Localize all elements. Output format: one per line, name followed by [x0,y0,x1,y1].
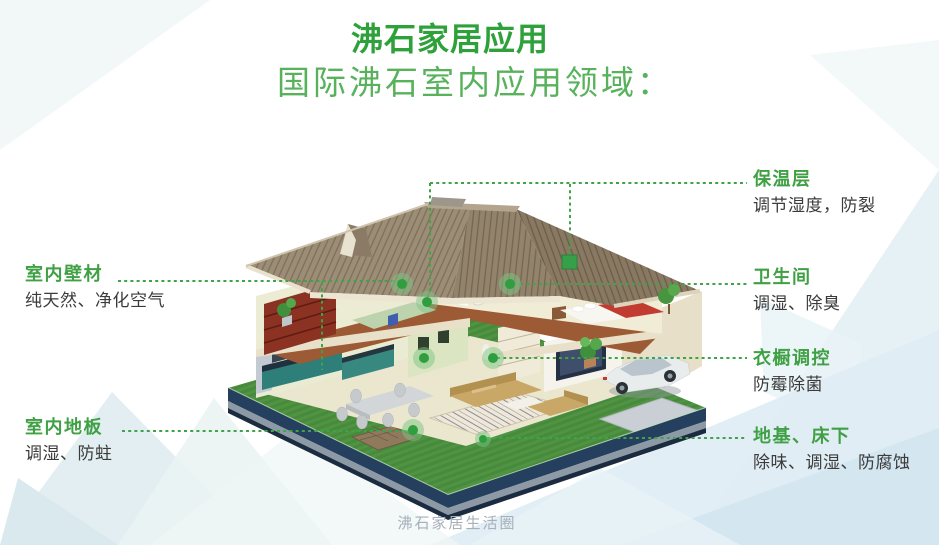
annotation-desc: 防霉除菌 [753,376,831,395]
annotation-interior-floor: 室内地板 调湿、防蛀 [25,418,113,463]
annotation-title: 室内地板 [25,418,113,438]
foundation-marker [475,431,491,447]
annotation-desc: 调节湿度，防裂 [753,197,876,216]
annotation-title: 地基、床下 [753,427,911,447]
annotation-foundation: 地基、床下 除味、调湿、防腐蚀 [753,427,911,472]
zeolite-home-infographic: 沸石家居应用 国际沸石室内应用领域： 室内壁材 纯天然、净化空气 室内地板 调湿… [0,0,939,545]
annotation-desc: 调湿、除臭 [753,295,841,314]
attic-interior-marker [416,291,438,313]
annotation-title: 卫生间 [753,268,841,288]
page-subtitle: 国际沸石室内应用领域： [0,56,939,104]
green-point-markers [391,273,521,447]
annotation-title: 保温层 [753,170,876,190]
roof-insulation-square-marker [562,255,577,269]
bathroom-marker [499,273,521,295]
wall-material-marker [391,273,413,295]
ground-wall-marker [413,347,435,369]
page-title: 沸石家居应用 [0,14,900,60]
annotation-interior-wall: 室内壁材 纯天然、净化空气 [25,265,165,310]
annotation-title: 室内壁材 [25,265,165,285]
annotation-bathroom: 卫生间 调湿、除臭 [753,268,841,313]
wardrobe-marker [482,347,504,369]
floor-marker [402,419,424,441]
annotation-desc: 纯天然、净化空气 [25,292,165,311]
watermark-text: 沸石家居生活圈 [0,512,914,533]
annotation-wardrobe: 衣橱调控 防霉除菌 [753,349,831,394]
annotation-desc: 调湿、防蛀 [25,445,113,464]
annotation-insulation-layer: 保温层 调节湿度，防裂 [753,170,876,215]
annotation-desc: 除味、调湿、防腐蚀 [753,454,911,473]
annotation-title: 衣橱调控 [753,349,831,369]
